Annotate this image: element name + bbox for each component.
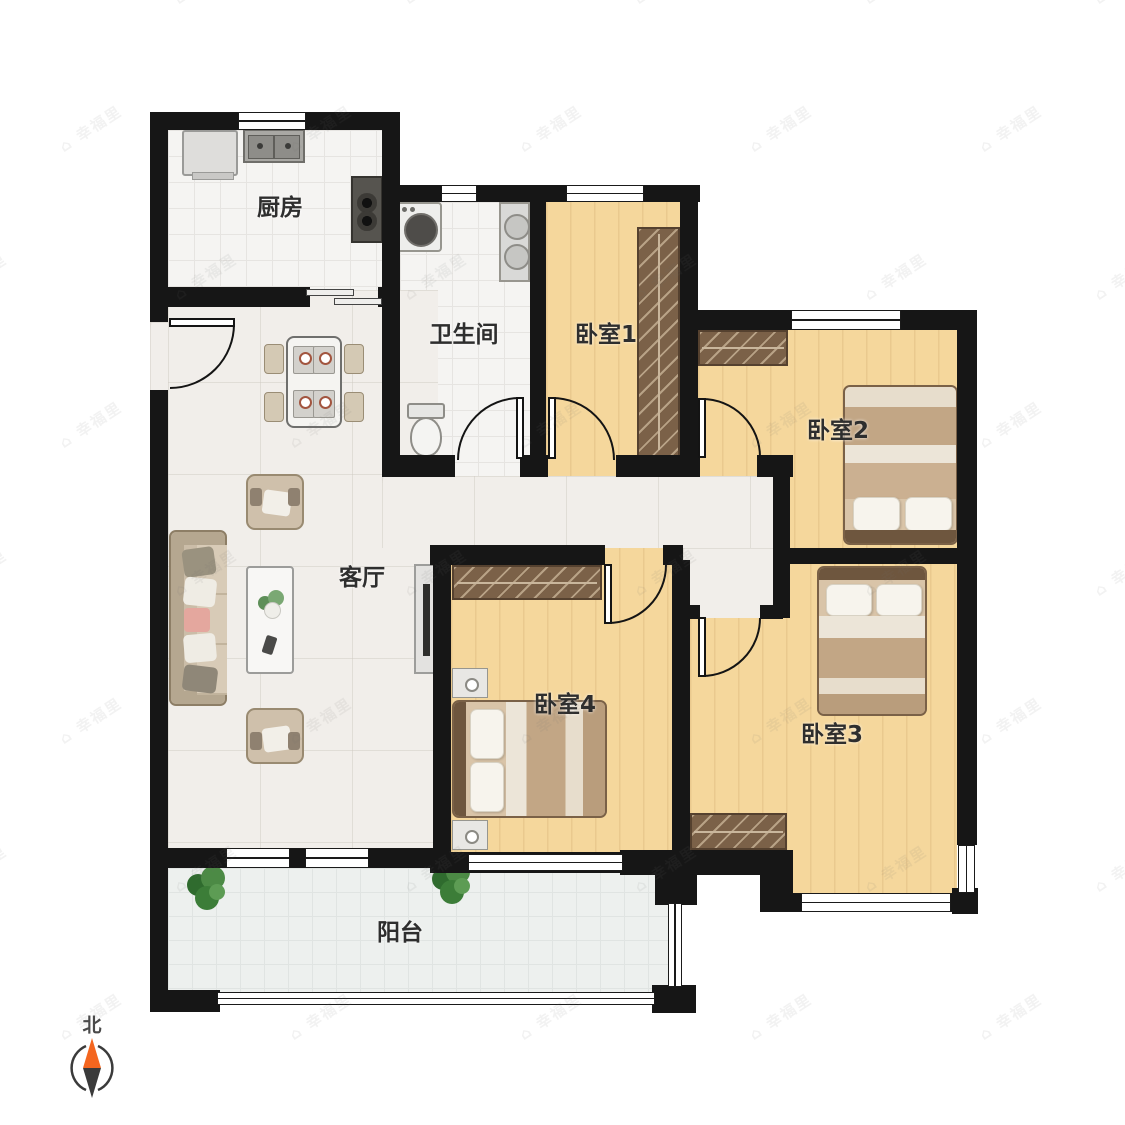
entry-door-patch (150, 322, 168, 390)
window (791, 310, 901, 330)
nightstand (452, 668, 488, 698)
leaf (209, 884, 225, 900)
toilet (407, 403, 445, 459)
kitchen-sink (243, 129, 305, 163)
place-setting (313, 346, 335, 374)
fridge-handle (192, 172, 234, 180)
sofa-backrest (171, 545, 184, 695)
watermark: ⌂ 幸福里 (860, 0, 931, 9)
wall-segment (620, 850, 762, 875)
bedroom3-label: 卧室3 (801, 715, 863, 749)
bedroom4-label: 卧室4 (534, 685, 596, 719)
window (801, 893, 951, 912)
fridge (182, 130, 238, 176)
watermark: ⌂ 幸福里 (0, 0, 11, 9)
exterior-notch (688, 871, 762, 916)
bedroom2-label: 卧室2 (807, 411, 869, 445)
wall-segment (652, 985, 696, 1013)
leaf (454, 878, 470, 894)
watermark: ⌂ 幸福里 (860, 248, 931, 304)
stove-burner (357, 211, 377, 231)
sofa (169, 530, 227, 706)
compass-north-label: 北 (82, 1011, 101, 1038)
toilet-bowl (410, 417, 442, 457)
wall-segment (430, 545, 605, 565)
compass-circle-right (98, 1046, 112, 1090)
dining-chair (344, 344, 364, 374)
wall-segment (382, 455, 455, 477)
wardrobe-bedroom2 (698, 330, 788, 366)
wall-segment (382, 185, 700, 202)
watermark: ⌂ 幸福里 (515, 100, 586, 156)
armchair-cushion (250, 488, 262, 506)
floor-plan: 厨房 卫生间 卧室1 卧室2 卧室3 卧室4 客厅 阳台 北 ⌂ 幸福里⌂ 幸福… (0, 0, 1125, 1125)
armchair (246, 474, 304, 530)
bathroom-vanity (499, 202, 530, 282)
wall-segment (773, 463, 790, 618)
remote (261, 635, 277, 656)
sofa-pillow (182, 664, 219, 694)
sink-drain (257, 143, 263, 149)
sofa-pillow (183, 633, 217, 664)
wardrobe-bedroom1 (637, 227, 680, 457)
watermark: ⌂ 幸福里 (0, 248, 11, 304)
washer-drum (404, 213, 438, 247)
washer-knob (410, 207, 415, 212)
wall-segment (382, 130, 400, 455)
armchair-cushion (288, 488, 300, 506)
watermark: ⌂ 幸福里 (975, 396, 1046, 452)
dining-chair (264, 344, 284, 374)
place-setting (293, 346, 315, 374)
watermark: ⌂ 幸福里 (170, 0, 241, 9)
vanity-sink (504, 214, 530, 240)
sofa-pillow (183, 576, 218, 607)
window (668, 903, 682, 987)
kitchen-label: 厨房 (257, 188, 303, 222)
bed-pillow (853, 497, 900, 531)
bed-bedroom3 (817, 566, 927, 716)
armchair-cushion (250, 732, 262, 750)
watermark: ⌂ 幸福里 (745, 100, 816, 156)
watermark: ⌂ 幸福里 (55, 396, 126, 452)
stove (351, 176, 383, 243)
watermark: ⌂ 幸福里 (975, 988, 1046, 1044)
sofa-armrest (171, 532, 225, 545)
window (468, 854, 623, 871)
window (226, 848, 290, 868)
place-setting (313, 390, 335, 418)
sink-drain (285, 143, 291, 149)
compass (72, 1038, 113, 1098)
wardrobe-bedroom4 (452, 565, 602, 600)
wall-segment (150, 848, 445, 868)
stove-burner (357, 193, 377, 213)
washing-machine (396, 202, 442, 252)
compass-north-needle (83, 1038, 101, 1068)
bed-pillow (470, 762, 504, 812)
bed-headboard (454, 700, 466, 818)
watermark: ⌂ 幸福里 (400, 0, 471, 9)
bed-pillow (826, 584, 872, 616)
watermark: ⌂ 幸福里 (975, 692, 1046, 748)
watermark: ⌂ 幸福里 (0, 544, 11, 600)
wall-segment (150, 287, 310, 307)
wardrobe-bedroom3 (690, 813, 787, 850)
watermark: ⌂ 幸福里 (1090, 544, 1125, 600)
coffee-table (246, 566, 294, 674)
wall-segment (680, 202, 698, 476)
balcony-plant (183, 864, 229, 914)
bed-pillow (470, 709, 504, 759)
wall-segment (616, 455, 700, 477)
balcony-label: 阳台 (377, 913, 423, 947)
bed-blanket (819, 616, 925, 716)
compass-south-needle (83, 1068, 101, 1098)
wall-segment (672, 560, 690, 855)
watermark: ⌂ 幸福里 (1090, 248, 1125, 304)
watermark: ⌂ 幸福里 (55, 692, 126, 748)
bed-bedroom2 (843, 385, 958, 545)
washer-knob (402, 207, 407, 212)
compass-circle-left (72, 1046, 86, 1090)
leaf (264, 602, 281, 619)
kitchen-sliding-door (306, 289, 354, 296)
dining-chair (264, 392, 284, 422)
watermark: ⌂ 幸福里 (0, 840, 11, 896)
sofa-pillow (184, 608, 210, 632)
dining-table (286, 336, 342, 428)
sofa-pillow (181, 546, 217, 578)
table-plant (256, 590, 286, 620)
bed-headboard (843, 530, 958, 543)
armchair-cushion (288, 732, 300, 750)
watermark: ⌂ 幸福里 (1090, 0, 1125, 9)
bed-pillow (905, 497, 952, 531)
wall-segment (150, 390, 168, 1012)
window (958, 845, 975, 893)
watermark: ⌂ 幸福里 (630, 0, 701, 9)
wall-segment (957, 330, 977, 845)
living-room-label: 客厅 (339, 558, 385, 592)
bedroom1-label: 卧室1 (575, 315, 637, 349)
window (305, 848, 369, 868)
wall-segment (530, 202, 546, 458)
wall-segment (760, 605, 783, 619)
balcony-railing (217, 992, 655, 1005)
kitchen-sliding-door (334, 298, 382, 305)
window (566, 185, 644, 202)
wall-segment (655, 873, 697, 905)
bed-headboard (817, 568, 927, 580)
nightstand (452, 820, 488, 850)
window (238, 112, 306, 130)
wall-segment (433, 545, 451, 855)
watermark: ⌂ 幸福里 (55, 100, 126, 156)
armchair (246, 708, 304, 764)
bathroom-label: 卫生间 (430, 315, 499, 349)
watermark: ⌂ 幸福里 (1090, 840, 1125, 896)
bed-blanket (506, 702, 607, 816)
place-setting (293, 390, 315, 418)
wall-segment (520, 455, 548, 477)
hallway-floor (382, 476, 790, 548)
bed-pillow (876, 584, 922, 616)
watermark: ⌂ 幸福里 (975, 100, 1046, 156)
window (441, 185, 477, 202)
watermark: ⌂ 幸福里 (745, 988, 816, 1044)
tv-screen (423, 584, 430, 656)
vanity-sink (504, 244, 530, 270)
wall-segment (150, 990, 220, 1012)
wall-segment (777, 548, 957, 564)
dining-chair (344, 392, 364, 422)
